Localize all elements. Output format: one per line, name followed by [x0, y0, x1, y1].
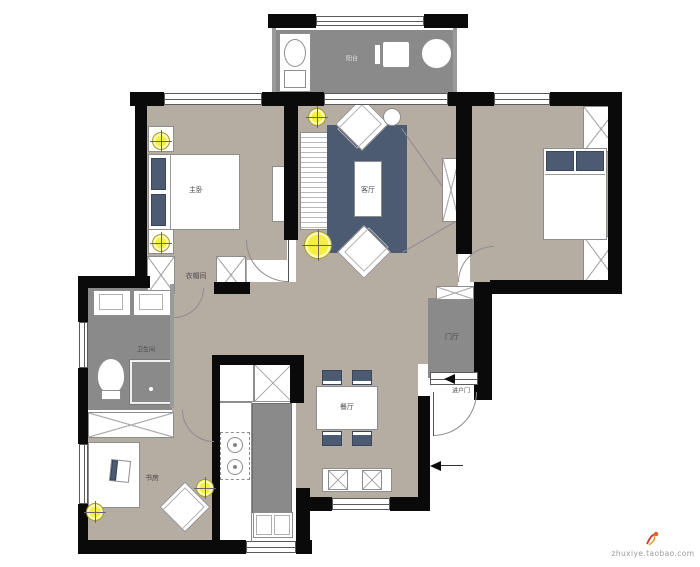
shower-enclosure: [130, 360, 172, 404]
balcony-wall: [453, 28, 457, 94]
entry-direction-icon: [444, 374, 455, 384]
entry-door-leaf: [433, 392, 434, 436]
wall: [418, 396, 430, 511]
ceiling-light-icon: [86, 503, 104, 521]
dining-chair: [352, 370, 372, 385]
pillow: [546, 151, 574, 171]
sideboard-decor: [362, 470, 382, 490]
tv-cabinet: [300, 132, 330, 230]
balcony-label: 阳台: [346, 54, 358, 63]
watermark-logo-icon: [644, 530, 662, 546]
wall: [608, 92, 622, 294]
dining-chair: [322, 431, 342, 446]
wall: [268, 14, 316, 28]
dining-chair: [352, 431, 372, 446]
balcony-sliding-door: [324, 93, 448, 105]
toilet-icon: [97, 358, 125, 394]
shower-drain-icon: [148, 386, 154, 392]
ceiling-light-icon: [196, 479, 214, 497]
wall: [456, 92, 472, 254]
wall: [212, 363, 220, 543]
wall: [78, 276, 150, 288]
window: [246, 541, 296, 553]
laundry-sink-icon: [284, 39, 306, 67]
wall: [290, 357, 304, 403]
sideboard-decor: [328, 470, 348, 490]
wall: [296, 540, 312, 554]
chair-back: [110, 460, 118, 481]
bed-headboard-line: [170, 155, 171, 229]
study-wardrobe: [88, 412, 174, 438]
ceiling-light-icon: [304, 231, 332, 259]
balcony-window: [316, 16, 424, 26]
floor-plan: 主卧 衣帽间 客厅 餐厅 卫生间 书房 门厅 阳台 进户门 zhuxiye.ta…: [0, 0, 700, 567]
wall: [135, 92, 147, 286]
fridge-icon: [254, 364, 292, 402]
watermark: zhuxiye.taobao.com: [608, 530, 698, 562]
wall: [78, 540, 218, 554]
wall: [296, 497, 332, 511]
window: [332, 498, 390, 510]
desk-chair: [109, 459, 131, 483]
pillow: [151, 158, 166, 190]
ceiling-light-icon: [308, 108, 326, 126]
ceiling-light-icon: [152, 234, 170, 252]
study-label: 书房: [145, 473, 159, 483]
burner-dot: [233, 443, 237, 447]
bed-blanket-line: [545, 174, 605, 175]
door-swing: [246, 240, 288, 282]
sink-basin: [274, 515, 290, 535]
wall: [78, 288, 88, 322]
entry-door-label: 进户门: [452, 386, 470, 395]
kitchen-island: [252, 403, 292, 513]
wall: [214, 282, 250, 294]
toilet-base: [101, 390, 121, 400]
window: [79, 322, 88, 368]
window: [164, 93, 262, 105]
pillow: [151, 194, 166, 226]
arrow-line: [441, 465, 463, 466]
sink-basin: [139, 294, 163, 310]
dining-chair: [322, 370, 342, 385]
window: [494, 93, 550, 105]
washer-panel: [374, 44, 381, 65]
window: [79, 444, 88, 504]
living-room-label: 客厅: [361, 185, 375, 195]
water-heater-icon: [421, 38, 452, 69]
burner-dot: [233, 465, 237, 469]
entry-door-swing: [433, 392, 477, 436]
ceiling-light-icon: [152, 132, 170, 150]
dining-room-label: 餐厅: [340, 402, 354, 412]
shoe-cabinet: [436, 286, 474, 300]
watermark-text: zhuxiye.taobao.com: [608, 549, 698, 558]
master-bedroom-label: 主卧: [189, 185, 203, 195]
wall: [78, 368, 88, 444]
arrow-icon: [430, 461, 441, 471]
closet-label: 衣帽间: [186, 271, 207, 281]
foyer-label: 门厅: [445, 332, 459, 342]
wall: [490, 280, 622, 294]
kitchen-cabinet: [218, 364, 254, 402]
bathroom-label: 卫生间: [137, 345, 155, 354]
sink-basin: [99, 294, 123, 310]
door-leaf: [288, 240, 289, 282]
balcony-wall: [272, 28, 276, 94]
washing-machine-icon: [382, 41, 410, 68]
wall: [284, 92, 298, 240]
side-table: [383, 108, 401, 126]
wall: [216, 540, 246, 554]
pillow: [576, 151, 604, 171]
laundry-cabinet: [284, 70, 306, 88]
wall: [424, 14, 468, 28]
sink-basin: [256, 515, 272, 535]
